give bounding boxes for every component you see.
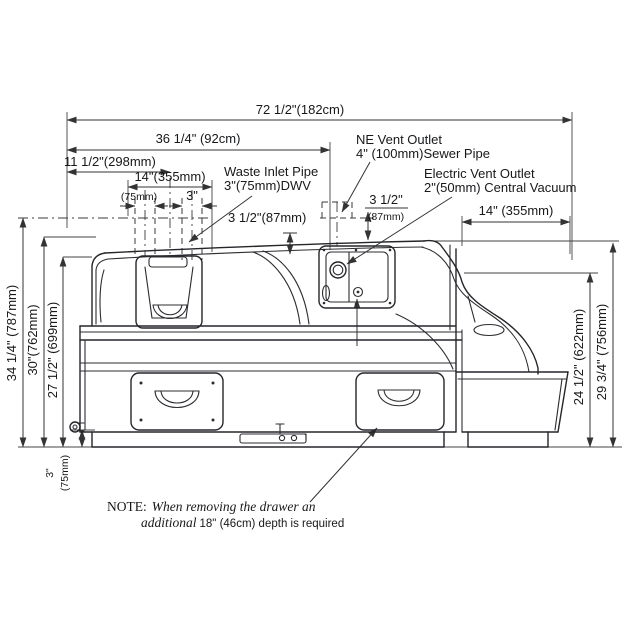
finishing-drawer-bin	[456, 296, 568, 447]
dim-87-vent-label-bottom: (87mm)	[368, 211, 404, 223]
technical-drawing-page: 72 1/2"(182cm) 36 1/4" (92cm) 11 1/2"(29…	[0, 0, 630, 630]
drain-spigot	[70, 422, 84, 432]
electric-vent-hole	[330, 262, 346, 278]
vent-panel	[319, 246, 395, 308]
dim-27-label: 27 1/2" (699mm)	[45, 302, 60, 398]
note-line-2: additional18" (46cm) depth is required	[141, 515, 344, 530]
waste-inlet-funnel	[136, 256, 202, 328]
dimension-drawing: 72 1/2"(182cm) 36 1/4" (92cm) 11 1/2"(29…	[0, 0, 630, 630]
crank-handle	[474, 325, 504, 336]
drawer-left	[131, 373, 223, 430]
unit-body	[80, 241, 538, 447]
body-contour-left	[253, 252, 300, 324]
dim-11half-label: 11 1/2"(298mm)	[64, 154, 156, 169]
note-line-1: NOTE:When removing the drawer an	[107, 499, 316, 514]
hopper-curve	[424, 241, 538, 374]
body-contour-right	[396, 314, 453, 369]
note-block: NOTE:When removing the drawer an additio…	[107, 499, 344, 530]
drawer-right	[356, 373, 444, 430]
dim-14-right-label: 14" (355mm)	[479, 203, 554, 218]
dim-36-label: 36 1/4" (92cm)	[156, 131, 241, 146]
dim-75mm-label: (75mm)	[121, 191, 157, 203]
dim-3-label: 3"	[44, 468, 56, 478]
bottom-latch	[240, 424, 306, 443]
ne-vent-label-2: 4" (100mm)Sewer Pipe	[356, 146, 490, 161]
dim-14-left-label: 14"(355mm)	[134, 169, 205, 184]
dim-29-label: 29 3/4" (756mm)	[594, 304, 609, 400]
dimension-labels: 72 1/2"(182cm) 36 1/4" (92cm) 11 1/2"(29…	[4, 102, 609, 491]
dim-87-left-label: 3 1/2"(87mm)	[228, 210, 306, 225]
dim-34-label: 34 1/4" (787mm)	[4, 285, 19, 381]
callout-labels: Waste Inlet Pipe 3"(75mm)DWV NE Vent Out…	[224, 132, 576, 195]
electric-vent-label-1: Electric Vent Outlet	[424, 166, 535, 181]
waste-inlet-label-2: 3"(75mm)DWV	[224, 178, 311, 193]
ne-vent-label-1: NE Vent Outlet	[356, 132, 442, 147]
electric-vent-label-2: 2"(50mm) Central Vacuum	[424, 180, 576, 195]
ne-vent-leader	[342, 162, 370, 212]
waste-inlet-label-1: Waste Inlet Pipe	[224, 164, 318, 179]
dim-24-label: 24 1/2" (622mm)	[571, 309, 586, 405]
dim-30-label: 30"(762mm)	[25, 304, 40, 375]
dim-3in-label: 3"	[186, 188, 198, 203]
note-leader	[310, 428, 377, 502]
dim-87-vent-label-top: 3 1/2"	[369, 192, 403, 207]
dim-3mm-label: (75mm)	[59, 455, 71, 491]
dim-overall-width-label: 72 1/2"(182cm)	[256, 102, 344, 117]
